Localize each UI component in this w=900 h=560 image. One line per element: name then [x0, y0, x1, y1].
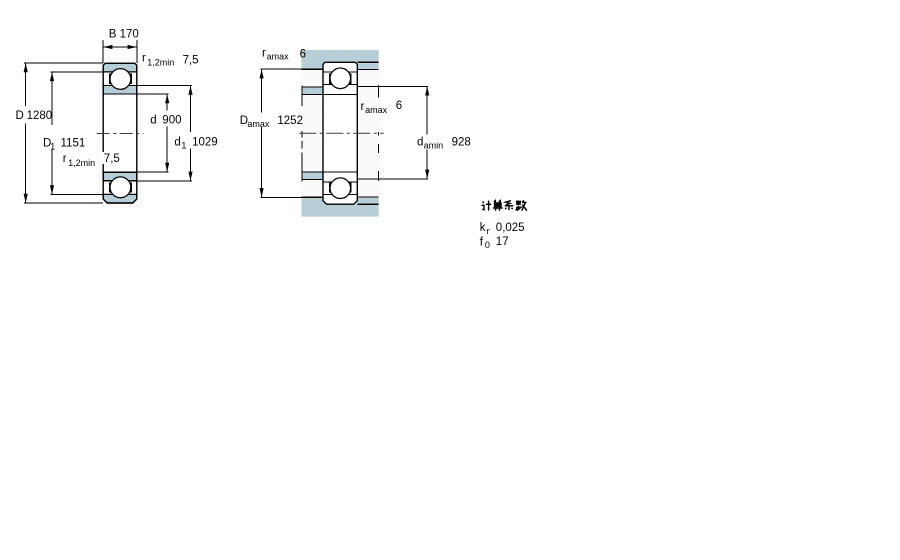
svg-text:r: r — [262, 48, 266, 60]
svg-text:900: 900 — [162, 115, 181, 127]
svg-text:r: r — [361, 101, 365, 113]
svg-text:6: 6 — [396, 100, 402, 112]
svg-text:1029: 1029 — [192, 137, 218, 149]
svg-text:d: d — [417, 137, 423, 149]
svg-text:17: 17 — [496, 236, 509, 248]
svg-text:r: r — [487, 226, 490, 236]
svg-text:1: 1 — [50, 142, 55, 152]
svg-text:r: r — [63, 153, 67, 165]
svg-text:170: 170 — [120, 29, 139, 41]
svg-text:7,5: 7,5 — [104, 153, 120, 165]
svg-text:d: d — [174, 137, 180, 149]
svg-text:0: 0 — [485, 240, 490, 250]
svg-text:1: 1 — [181, 141, 186, 151]
svg-text:amax: amax — [365, 105, 388, 115]
svg-text:k: k — [480, 222, 486, 234]
svg-text:B: B — [109, 29, 117, 41]
svg-text:6: 6 — [300, 49, 306, 61]
svg-text:0,025: 0,025 — [496, 222, 525, 234]
svg-text:1252: 1252 — [277, 115, 303, 127]
svg-text:1,2min: 1,2min — [147, 58, 174, 68]
svg-text:r: r — [142, 53, 146, 65]
svg-text:1151: 1151 — [61, 138, 86, 150]
svg-text:amax: amax — [267, 52, 290, 62]
svg-text:1280: 1280 — [27, 110, 53, 122]
svg-text:928: 928 — [452, 136, 471, 148]
svg-text:amin: amin — [424, 141, 444, 151]
svg-text:1,2min: 1,2min — [68, 158, 95, 168]
svg-text:D: D — [16, 110, 24, 122]
svg-text:amax: amax — [247, 119, 270, 129]
svg-text:d: d — [150, 115, 156, 127]
svg-text:7,5: 7,5 — [183, 55, 199, 67]
